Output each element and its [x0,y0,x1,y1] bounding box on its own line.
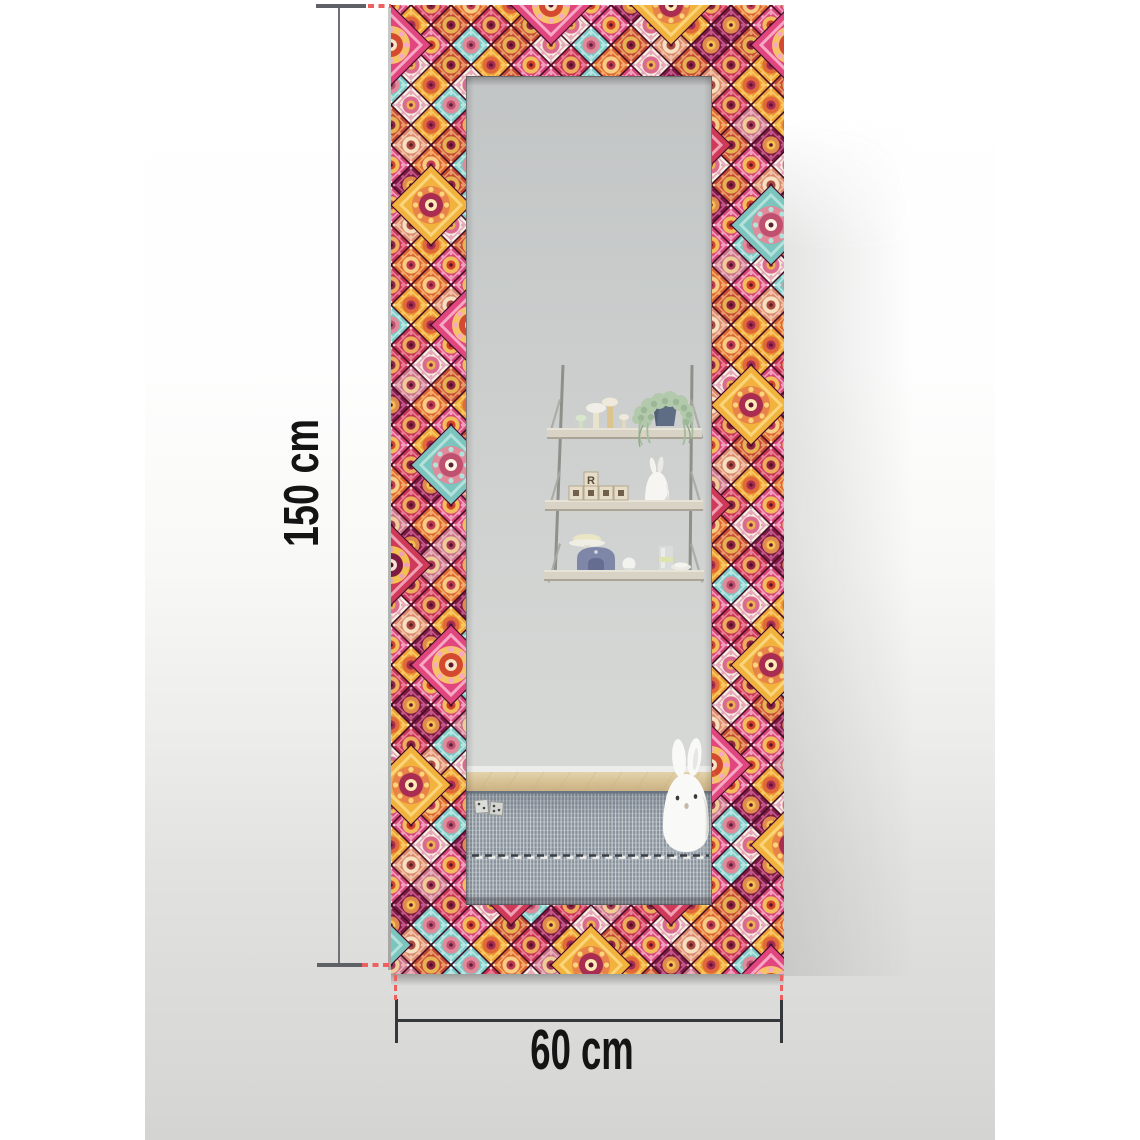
svg-text:R: R [587,475,595,487]
